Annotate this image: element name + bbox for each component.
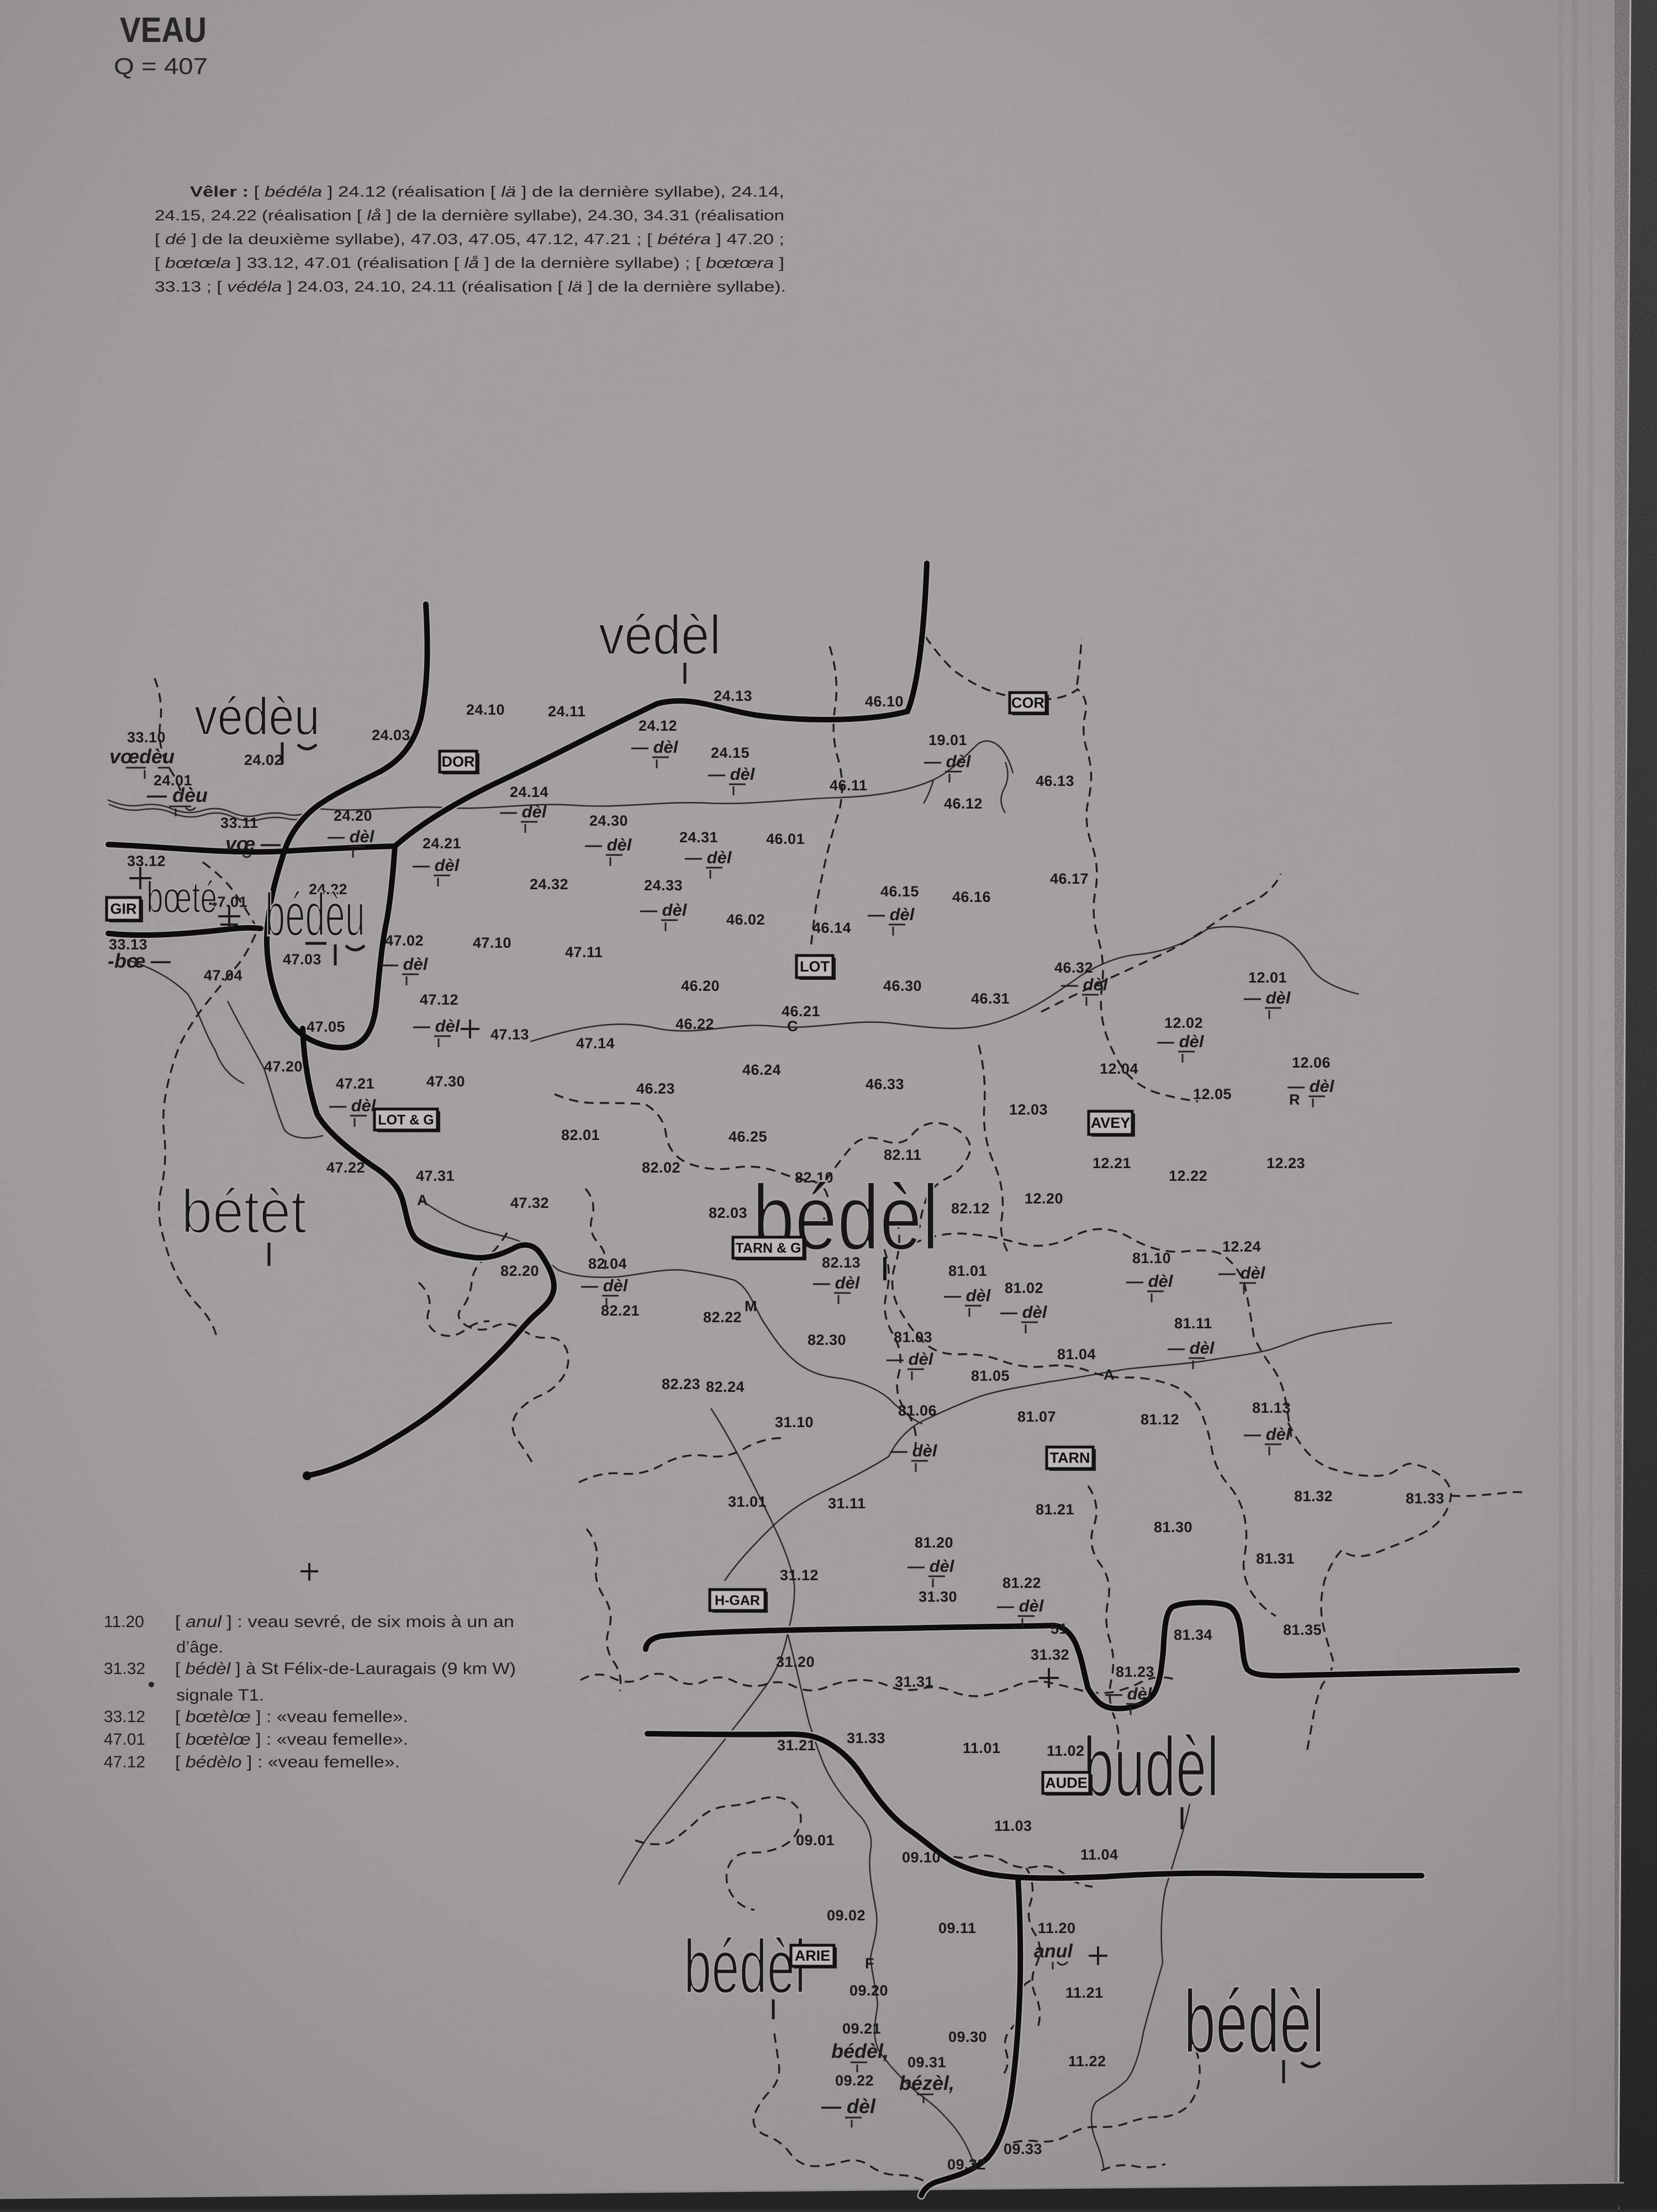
svg-text:— dèl: — dèl xyxy=(640,900,688,920)
svg-text:11.03: 11.03 xyxy=(994,1818,1032,1834)
svg-text:46.23: 46.23 xyxy=(636,1080,675,1097)
svg-text:31.32: 31.32 xyxy=(104,1660,145,1678)
svg-text:C: C xyxy=(787,1018,798,1034)
svg-text:81.01: 81.01 xyxy=(948,1263,987,1279)
svg-text:31.01: 31.01 xyxy=(728,1493,767,1510)
svg-text:31.33: 31.33 xyxy=(847,1730,885,1746)
svg-text:[ dé ] de la deuxième syllabe): [ dé ] de la deuxième syllabe), 47.03, 4… xyxy=(155,231,784,247)
svg-text:12.22: 12.22 xyxy=(1169,1168,1207,1184)
svg-text:46.14: 46.14 xyxy=(812,920,851,936)
svg-text:24.21: 24.21 xyxy=(423,835,461,852)
svg-text:— dèl: — dèl xyxy=(631,737,679,757)
svg-text:81.22: 81.22 xyxy=(1002,1575,1041,1591)
svg-text:82.12: 82.12 xyxy=(951,1200,990,1217)
svg-text:81.10: 81.10 xyxy=(1132,1250,1171,1266)
svg-text:AUDE: AUDE xyxy=(1045,1775,1088,1791)
svg-text:Q = 407: Q = 407 xyxy=(114,53,208,79)
svg-text:09.21: 09.21 xyxy=(842,2020,881,2037)
svg-text:81.35: 81.35 xyxy=(1283,1622,1322,1638)
svg-text:81.20: 81.20 xyxy=(915,1534,953,1551)
svg-text:bédèu: bédèu xyxy=(265,881,365,949)
svg-text:31.11: 31.11 xyxy=(828,1495,866,1512)
svg-text:81.06: 81.06 xyxy=(898,1402,937,1419)
svg-text:— dèl: — dèl xyxy=(1000,1302,1048,1322)
svg-text:09.20: 09.20 xyxy=(849,1982,888,1999)
svg-text:47.21: 47.21 xyxy=(336,1075,374,1092)
svg-text:11.04: 11.04 xyxy=(1080,1846,1118,1863)
svg-text:12.06: 12.06 xyxy=(1292,1054,1331,1071)
svg-text:46.20: 46.20 xyxy=(681,978,720,994)
svg-text:47.32: 47.32 xyxy=(510,1195,549,1211)
svg-text:47.11: 47.11 xyxy=(565,944,603,960)
svg-text:24.33: 24.33 xyxy=(644,877,683,894)
svg-text:47.31: 47.31 xyxy=(416,1168,455,1184)
svg-text:12.05: 12.05 xyxy=(1193,1086,1232,1102)
svg-text:81.33: 81.33 xyxy=(1406,1490,1444,1507)
svg-text:33.10: 33.10 xyxy=(127,729,166,746)
svg-text:[ bœtèlœ ] : «veau femelle».: [ bœtèlœ ] : «veau femelle». xyxy=(175,1730,408,1749)
svg-text:47.20: 47.20 xyxy=(264,1058,303,1075)
svg-text:bédèl: bédèl xyxy=(684,1924,806,2009)
svg-text:09.30: 09.30 xyxy=(948,2029,987,2045)
svg-text:46.12: 46.12 xyxy=(944,795,983,812)
svg-text:47.22: 47.22 xyxy=(326,1159,365,1176)
svg-text:— dèl: — dèl xyxy=(708,764,756,784)
svg-text:81.02: 81.02 xyxy=(1005,1280,1043,1296)
svg-text:bédèl,: bédèl, xyxy=(831,2040,889,2062)
svg-text:47.02: 47.02 xyxy=(385,932,424,949)
svg-text:82.01: 82.01 xyxy=(561,1127,600,1143)
svg-text:31.21: 31.21 xyxy=(777,1737,816,1754)
svg-text:46.10: 46.10 xyxy=(865,693,904,710)
svg-text:47.13: 47.13 xyxy=(490,1026,529,1043)
svg-text:— dèu: — dèu xyxy=(146,784,208,806)
svg-text:31.12: 31.12 xyxy=(780,1567,819,1583)
svg-text:11.02: 11.02 xyxy=(1047,1743,1085,1759)
svg-text:46.33: 46.33 xyxy=(866,1076,904,1092)
svg-text:47.01: 47.01 xyxy=(104,1730,145,1749)
svg-text:24.20: 24.20 xyxy=(334,807,372,824)
svg-text:12.24: 12.24 xyxy=(1222,1238,1261,1255)
svg-text:-bœ —: -bœ — xyxy=(108,949,171,972)
svg-text:12.21: 12.21 xyxy=(1093,1155,1131,1171)
svg-text:33.12: 33.12 xyxy=(127,853,166,869)
svg-text:24.13: 24.13 xyxy=(714,688,752,704)
svg-text:— dèl: — dèl xyxy=(1167,1338,1215,1358)
svg-text:— dèl: — dèl xyxy=(584,835,632,854)
svg-text:47.12: 47.12 xyxy=(420,991,458,1008)
svg-text:Vêler : [ bédéla ] 24.12 (ré: Vêler : [ bédéla ] 24.12 (réalisation [ … xyxy=(190,183,784,200)
svg-text:09.01: 09.01 xyxy=(796,1832,835,1849)
svg-text:— dèl: — dèl xyxy=(499,802,547,821)
svg-text:81.34: 81.34 xyxy=(1174,1627,1212,1643)
svg-text:[ bœtèlœ ] : «veau femelle».: [ bœtèlœ ] : «veau femelle». xyxy=(175,1708,408,1726)
svg-text:— dèl: — dèl xyxy=(684,848,732,867)
svg-text:82.11: 82.11 xyxy=(884,1147,922,1163)
svg-text:védèl: védèl xyxy=(599,604,721,666)
svg-text:81.11: 81.11 xyxy=(1174,1315,1212,1332)
svg-text:81.05: 81.05 xyxy=(971,1368,1010,1384)
svg-text:09.32: 09.32 xyxy=(947,2156,986,2173)
svg-text:33.13 ; [ védéla ] 24.03, 24.1: 33.13 ; [ védéla ] 24.03, 24.10, 24.11 (… xyxy=(155,278,786,295)
svg-text:12.23: 12.23 xyxy=(1267,1155,1305,1171)
svg-text:33.11: 33.11 xyxy=(220,815,258,831)
svg-text:31.10: 31.10 xyxy=(775,1414,814,1430)
svg-text:A: A xyxy=(417,1192,428,1208)
svg-text:46.25: 46.25 xyxy=(729,1128,767,1145)
svg-text:— dèl: — dèl xyxy=(943,1286,991,1305)
svg-text:82.23: 82.23 xyxy=(662,1376,700,1392)
svg-text:F: F xyxy=(865,1955,874,1972)
svg-text:védèu: védèu xyxy=(194,687,320,746)
svg-text:TARN & G: TARN & G xyxy=(736,1240,801,1256)
svg-text:09.11: 09.11 xyxy=(938,1920,977,1936)
svg-text:12.04: 12.04 xyxy=(1100,1060,1138,1077)
svg-text:— dèl: — dèl xyxy=(812,1273,861,1292)
svg-text:signale T1.: signale T1. xyxy=(176,1686,264,1704)
svg-text:— dèl: — dèl xyxy=(327,827,375,846)
svg-text:47.12: 47.12 xyxy=(104,1753,145,1771)
svg-text:47.05: 47.05 xyxy=(307,1018,345,1035)
svg-text:— dèl: — dèl xyxy=(1105,1684,1153,1703)
svg-text:— dèl: — dèl xyxy=(1060,975,1109,994)
svg-text:GIR: GIR xyxy=(110,901,136,917)
svg-text:TARN: TARN xyxy=(1050,1450,1090,1466)
svg-text:— dèl: — dèl xyxy=(1218,1263,1266,1282)
svg-text:— dèl: — dèl xyxy=(867,905,915,924)
svg-text:— dèl: — dèl xyxy=(996,1596,1044,1616)
svg-text:82.30: 82.30 xyxy=(808,1332,846,1348)
svg-text:81.07: 81.07 xyxy=(1017,1408,1056,1425)
svg-text:46.11: 46.11 xyxy=(830,777,868,794)
svg-text:H-GAR: H-GAR xyxy=(715,1593,760,1608)
svg-text:81.31: 81.31 xyxy=(1256,1550,1295,1567)
svg-text:VEAU: VEAU xyxy=(120,10,207,50)
svg-text:24.14: 24.14 xyxy=(510,784,548,800)
svg-text:82.03: 82.03 xyxy=(709,1205,747,1221)
svg-text:46.15: 46.15 xyxy=(880,883,919,900)
svg-text:46.01: 46.01 xyxy=(766,831,805,847)
svg-text:M: M xyxy=(745,1298,757,1314)
svg-text:19.01: 19.01 xyxy=(928,732,967,748)
svg-text:51: 51 xyxy=(1051,1620,1068,1637)
svg-text:— dèl: — dèl xyxy=(907,1556,955,1576)
svg-text:09.31: 09.31 xyxy=(907,2054,946,2071)
svg-text:31.30: 31.30 xyxy=(919,1588,957,1605)
svg-text:LOT & G: LOT & G xyxy=(378,1112,434,1128)
svg-text:— dèl: — dèl xyxy=(1157,1032,1205,1051)
svg-text:budèl: budèl xyxy=(1083,1719,1219,1814)
svg-text:— dèl: — dèl xyxy=(413,1016,461,1036)
svg-text:46.02: 46.02 xyxy=(726,911,765,928)
svg-text:24.12: 24.12 xyxy=(638,717,677,734)
svg-text:82.24: 82.24 xyxy=(706,1379,745,1395)
svg-text:bézèl,: bézèl, xyxy=(899,2072,954,2094)
svg-text:— dèl: — dèl xyxy=(412,856,460,875)
svg-text:24.10: 24.10 xyxy=(466,701,505,718)
svg-text:vœ —: vœ — xyxy=(225,832,281,855)
svg-text:11.20: 11.20 xyxy=(1038,1920,1076,1936)
svg-text:24.15, 24.22 (réalisation [ lå: 24.15, 24.22 (réalisation [ lå ] de la d… xyxy=(155,207,784,224)
svg-text:vœdèu: vœdèu xyxy=(109,745,175,768)
svg-text:— dèl: — dèl xyxy=(1243,1424,1291,1444)
svg-text:— dèl: — dèl xyxy=(924,752,972,771)
svg-text:d’âge.: d’âge. xyxy=(176,1638,223,1656)
svg-text:[ bédèlo ] : «veau femelle».: [ bédèlo ] : «veau femelle». xyxy=(175,1753,400,1771)
svg-text:24.31: 24.31 xyxy=(679,829,718,846)
svg-text:46.32: 46.32 xyxy=(1054,959,1093,976)
svg-text:11.20: 11.20 xyxy=(104,1613,144,1631)
svg-text:81.32: 81.32 xyxy=(1294,1488,1333,1504)
svg-text:DOR: DOR xyxy=(442,753,475,770)
svg-text:46.24: 46.24 xyxy=(742,1062,781,1078)
svg-text:46.30: 46.30 xyxy=(883,978,922,994)
svg-text:82.04: 82.04 xyxy=(588,1255,627,1272)
svg-text:47.30: 47.30 xyxy=(426,1073,465,1090)
svg-text:bétèt: bétèt xyxy=(181,1177,307,1246)
svg-text:24.15: 24.15 xyxy=(711,745,750,761)
svg-text:47.14: 47.14 xyxy=(576,1035,615,1052)
svg-text:47.03: 47.03 xyxy=(283,951,321,968)
svg-text:anul: anul xyxy=(1034,1941,1073,1962)
svg-text:[ bœtœla ] 33.12, 47.01 (réali: [ bœtœla ] 33.12, 47.01 (réalisation [ l… xyxy=(155,255,784,271)
svg-text:bœté: bœté xyxy=(146,873,217,922)
svg-text:81.23: 81.23 xyxy=(1116,1664,1154,1680)
svg-text:47.10: 47.10 xyxy=(473,935,511,951)
svg-text:— dèl: — dèl xyxy=(329,1096,377,1115)
svg-text:81.04: 81.04 xyxy=(1057,1346,1096,1363)
svg-text:AVEY: AVEY xyxy=(1091,1115,1131,1131)
svg-text:46.17: 46.17 xyxy=(1050,870,1089,887)
svg-text:24.32: 24.32 xyxy=(530,876,568,893)
svg-text:ARIE: ARIE xyxy=(795,1947,831,1964)
svg-text:46.22: 46.22 xyxy=(676,1016,714,1032)
svg-text:— dèl: — dèl xyxy=(890,1441,938,1460)
svg-text:82.22: 82.22 xyxy=(703,1309,742,1326)
svg-text:81.03: 81.03 xyxy=(894,1329,932,1345)
svg-text:11.21: 11.21 xyxy=(1065,1984,1104,2001)
svg-text:81.13: 81.13 xyxy=(1252,1400,1291,1416)
svg-text:12.03: 12.03 xyxy=(1009,1101,1048,1118)
svg-text:24.11: 24.11 xyxy=(548,703,586,720)
svg-text:33.12: 33.12 xyxy=(104,1708,145,1726)
svg-text:82.20: 82.20 xyxy=(500,1263,539,1279)
svg-text:46.16: 46.16 xyxy=(952,889,991,905)
svg-text:— dèl: — dèl xyxy=(1243,988,1291,1007)
svg-text:— dèl: — dèl xyxy=(821,2095,876,2118)
svg-text:46.31: 46.31 xyxy=(971,990,1010,1007)
svg-text:— dèl: — dèl xyxy=(886,1349,934,1369)
svg-text:47.04: 47.04 xyxy=(204,967,242,984)
svg-text:46.13: 46.13 xyxy=(1036,773,1074,789)
svg-text:11.01: 11.01 xyxy=(963,1740,1001,1756)
svg-text:31.31: 31.31 xyxy=(895,1673,933,1690)
svg-text:31.32: 31.32 xyxy=(1031,1646,1069,1663)
svg-text:24.30: 24.30 xyxy=(589,812,628,829)
svg-text:A: A xyxy=(1104,1366,1115,1383)
svg-text:31.20: 31.20 xyxy=(776,1654,815,1670)
svg-text:09.10: 09.10 xyxy=(902,1849,941,1866)
svg-text:— dèl: — dèl xyxy=(1287,1076,1335,1096)
svg-text:09.02: 09.02 xyxy=(827,1907,866,1924)
svg-text:— dèl: — dèl xyxy=(1126,1271,1174,1291)
svg-text:[ bédèl ] à St Félix-de-Laurag: [ bédèl ] à St Félix-de-Lauragais (9 km … xyxy=(175,1660,516,1678)
svg-text:12.01: 12.01 xyxy=(1248,969,1287,986)
svg-text:09.33: 09.33 xyxy=(1004,2141,1042,2157)
svg-text:09.22: 09.22 xyxy=(835,2072,874,2089)
svg-text:46.21: 46.21 xyxy=(782,1003,820,1020)
svg-text:24.03: 24.03 xyxy=(372,727,410,743)
svg-text:bédèl: bédèl xyxy=(1184,1972,1324,2072)
svg-text:24.02: 24.02 xyxy=(244,752,283,768)
svg-text:LOT: LOT xyxy=(800,958,830,975)
svg-text:12.20: 12.20 xyxy=(1025,1190,1063,1207)
svg-text:81.21: 81.21 xyxy=(1036,1501,1074,1518)
svg-text:81.12: 81.12 xyxy=(1141,1411,1179,1428)
svg-text:COR: COR xyxy=(1011,695,1044,711)
svg-text:11.22: 11.22 xyxy=(1068,2053,1106,2070)
svg-text:— dèl: — dèl xyxy=(381,954,429,974)
svg-text:81.30: 81.30 xyxy=(1154,1519,1192,1535)
svg-text:[ anul ] : veau sevré, de six: [ anul ] : veau sevré, de six mois à un … xyxy=(175,1613,514,1631)
svg-text:12.02: 12.02 xyxy=(1164,1015,1203,1031)
svg-text:— dèl: — dèl xyxy=(581,1276,629,1295)
svg-text:82.02: 82.02 xyxy=(642,1159,680,1176)
